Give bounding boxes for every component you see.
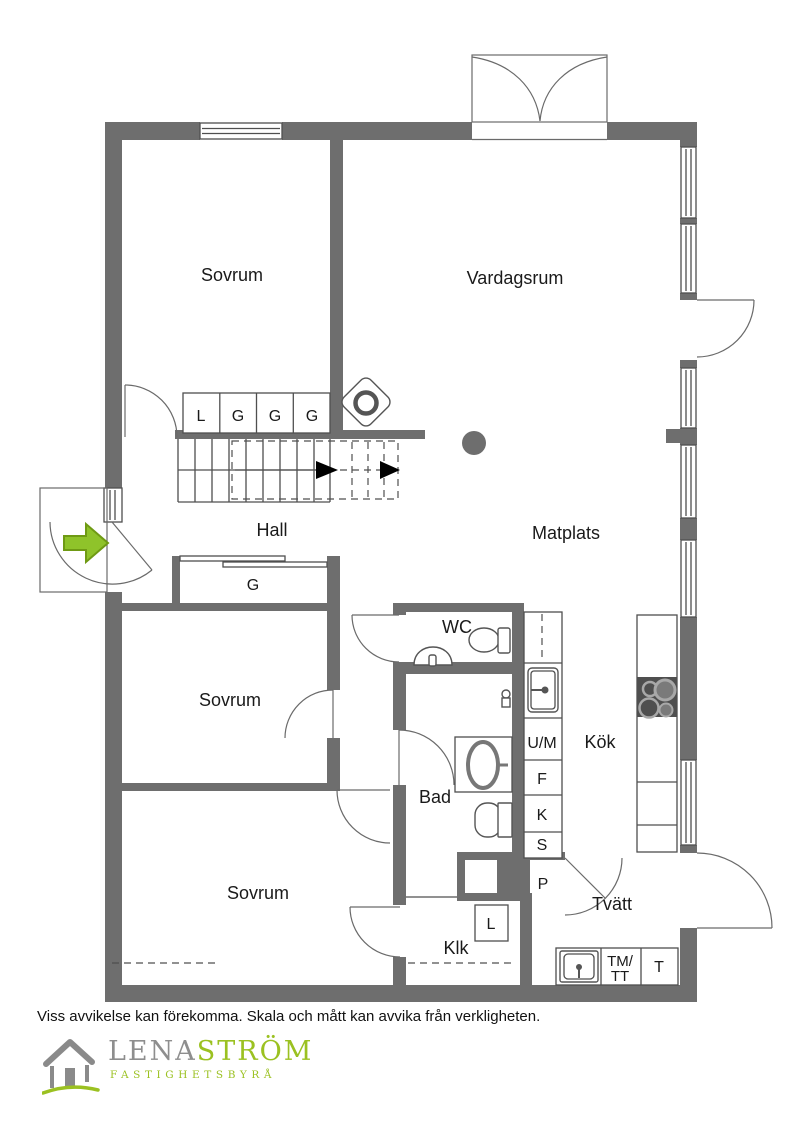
agency-logo: LENASTRÖM FASTIGHETSBYRÅ <box>42 1036 313 1100</box>
kitchen-cabinets-right <box>637 615 677 852</box>
room-label-kok: Kök <box>584 732 616 752</box>
washer-label-line2: TT <box>611 968 629 985</box>
logo-name-green: STRÖM <box>197 1036 314 1067</box>
logo-name: LENASTRÖM <box>108 1038 313 1065</box>
kitchen-unit-pantry: S <box>537 837 548 854</box>
room-label-tvatt: Tvätt <box>592 894 632 914</box>
chimney-pillar <box>462 431 486 455</box>
linen-cabinet-label: L <box>487 916 496 933</box>
room-label-sovrum-mid: Sovrum <box>199 690 261 710</box>
room-label-matplats: Matplats <box>532 523 600 543</box>
closet-label-g1: G <box>232 408 244 425</box>
door-bedroom-bottom <box>337 790 390 843</box>
closet-label-g2: G <box>269 408 281 425</box>
staircase <box>178 439 400 502</box>
door-bathroom <box>399 730 454 785</box>
kitchen-unit-freezer: F <box>537 771 547 788</box>
kitchen-unit-fridge: K <box>537 807 548 824</box>
room-label-sovrum-bottom: Sovrum <box>227 883 289 903</box>
door-bedroom-top <box>125 385 177 437</box>
interior-walls <box>122 140 565 985</box>
french-doors-terrace <box>472 55 607 140</box>
door-closet-klk <box>350 907 400 957</box>
bathroom-fixtures <box>455 690 512 837</box>
kitchen-cabinets-left: U/M F K S <box>524 612 562 858</box>
window-top-bedroom <box>200 123 282 139</box>
floorplan-page: L G G G G <box>0 0 800 1129</box>
room-label-hall: Hall <box>256 520 287 540</box>
dryer-label: T <box>654 959 664 976</box>
hall-closet-label: G <box>247 577 259 594</box>
room-label-klk: Klk <box>443 938 469 958</box>
water-tap-symbol <box>502 690 510 707</box>
entrance-door <box>40 488 152 592</box>
door-laundry-exterior <box>697 853 772 928</box>
stove <box>637 677 677 718</box>
stair-direction-arrow <box>316 461 338 479</box>
kitchen-sink <box>528 668 558 712</box>
fireplace <box>339 375 393 429</box>
wc-sink <box>414 647 452 666</box>
door-wc <box>352 615 399 662</box>
room-label-bad: Bad <box>419 787 451 807</box>
closet-row-bedroom-top: L G G G <box>183 393 330 433</box>
room-label-sovrum-top: Sovrum <box>201 265 263 285</box>
door-livingroom-exterior <box>697 300 754 357</box>
logo-tagline: FASTIGHETSBYRÅ <box>108 1069 313 1081</box>
logo-name-gray: LENA <box>108 1036 197 1067</box>
disclaimer-text: Viss avvikelse kan förekomma. Skala och … <box>37 1008 540 1025</box>
stair-direction-arrow-upper <box>380 461 400 479</box>
closet-label-l: L <box>197 408 206 425</box>
utility-p-label: P <box>538 876 549 893</box>
bath-basin <box>468 742 498 788</box>
house-logo-icon <box>42 1036 100 1100</box>
linen-cabinet: L <box>475 905 508 941</box>
room-label-wc: WC <box>442 617 472 637</box>
wc-toilet <box>469 628 510 653</box>
entry-direction-arrow <box>64 524 108 562</box>
laundry-sink <box>560 951 598 982</box>
floorplan-drawing: L G G G G <box>0 0 800 1010</box>
bath-toilet <box>475 803 512 837</box>
closet-label-g3: G <box>306 408 318 425</box>
door-bedroom-mid <box>285 690 333 738</box>
hall-closet: G <box>180 556 327 594</box>
room-label-vardagsrum: Vardagsrum <box>467 268 564 288</box>
kitchen-unit-dishwasher: U/M <box>527 735 556 752</box>
